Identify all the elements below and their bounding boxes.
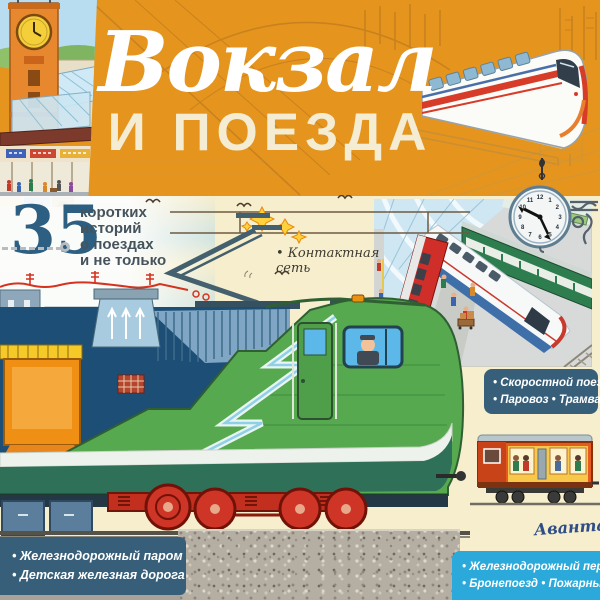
contact-wire-label: • Контактная сеть (276, 246, 396, 276)
publisher-logo: Аванта (533, 516, 600, 540)
title-script: Вокзал (92, 10, 442, 114)
panel-ferry: • Железнодорожный паром • Детская железн… (0, 537, 186, 595)
svg-text:12: 12 (537, 195, 544, 201)
svg-text:11: 11 (527, 198, 534, 204)
panel-crossing: • Железнодорожный переезд • Бронепоезд •… (452, 551, 600, 600)
title-caps: И ПОЕЗДА (100, 102, 440, 164)
locomotive-cutaway-illustration (0, 195, 470, 540)
red-tram-car-illustration (470, 425, 600, 510)
panel-speed-trains: • Скоростной поезд • Паровоз • Трамвай (484, 369, 598, 414)
transformer-cabinet (0, 345, 84, 463)
air-intake-funnel (92, 289, 160, 347)
book-cover: Вокзал И ПОЕЗДА 35 коротких историй о по… (0, 0, 600, 600)
catenary-wires (170, 212, 470, 233)
driver-figure (361, 338, 375, 352)
station-cutaway-illustration (0, 0, 100, 207)
ballast-gravel (178, 529, 460, 600)
station-clock-icon: 121234567891011 (498, 152, 598, 257)
